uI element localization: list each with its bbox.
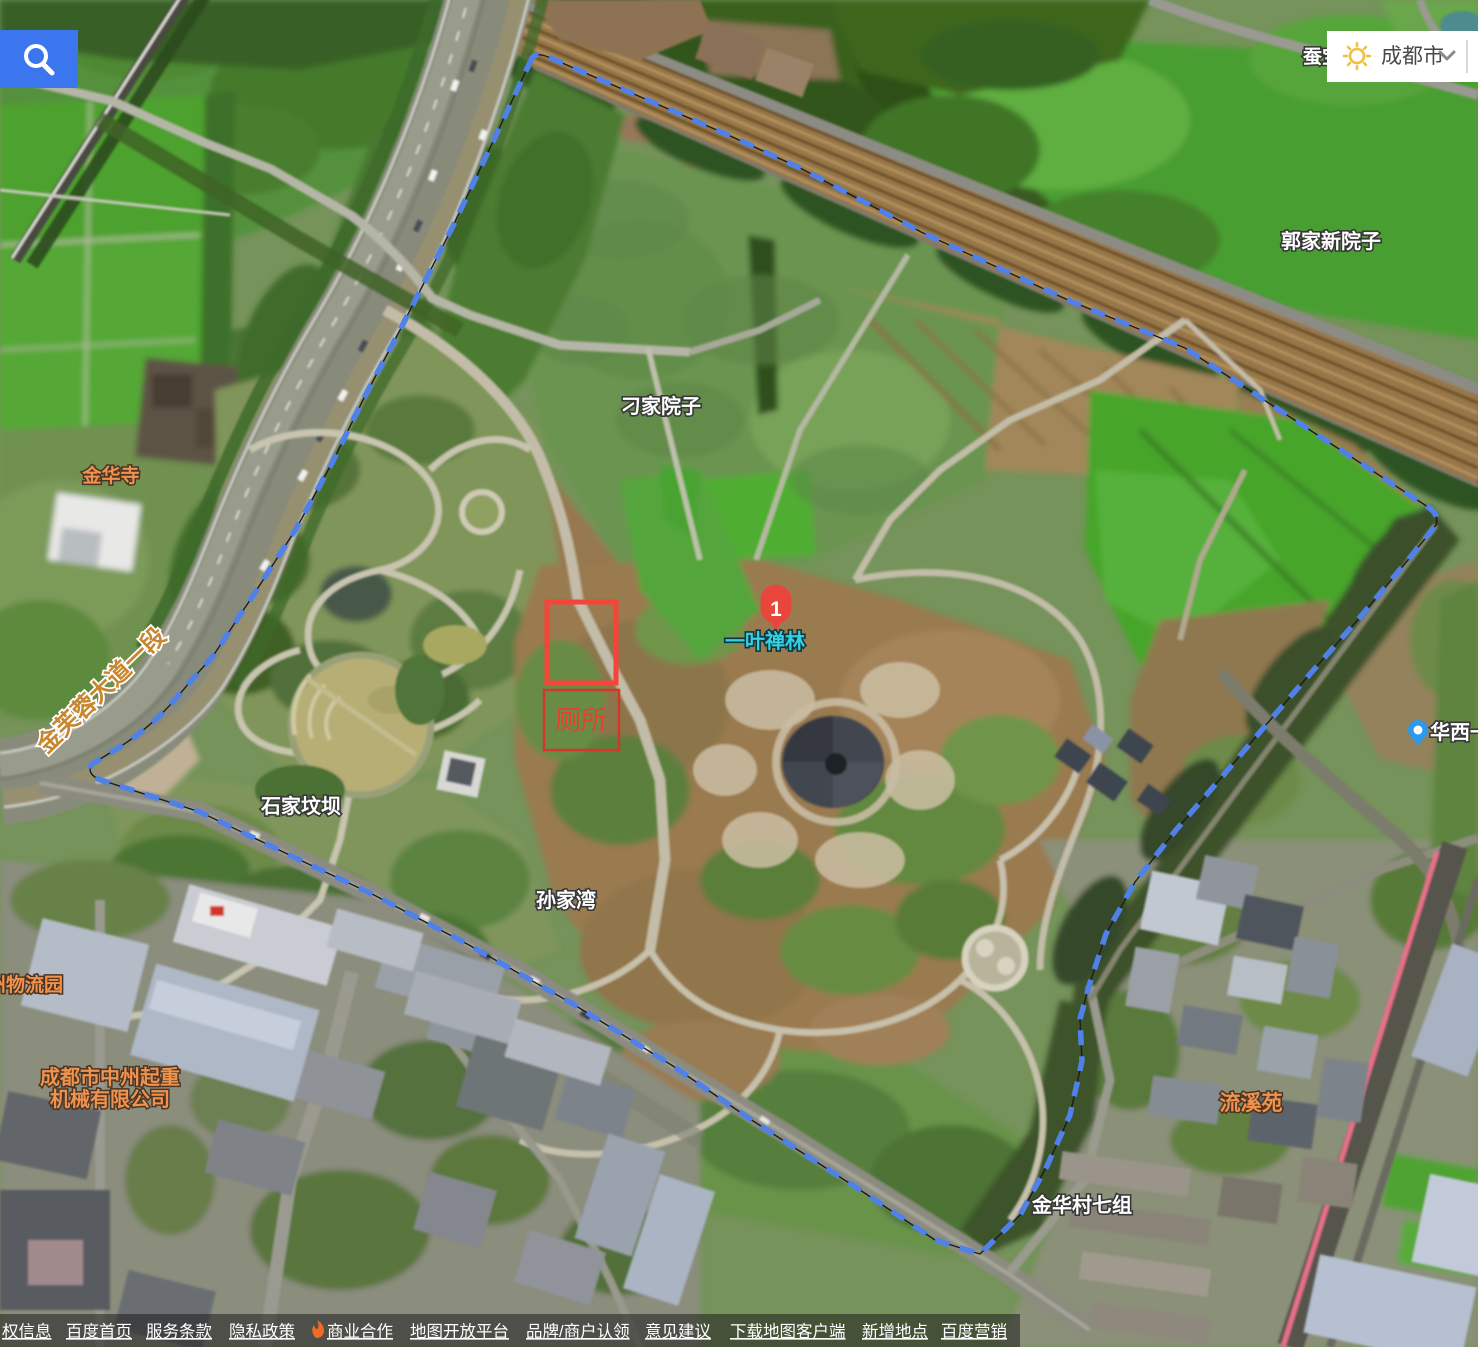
svg-text:华西一: 华西一 [1430, 720, 1478, 744]
svg-text:百度首页: 百度首页 [66, 1322, 132, 1341]
svg-text:地图开放平台: 地图开放平台 [410, 1322, 509, 1341]
svg-text:隐私政策: 隐私政策 [229, 1322, 295, 1341]
svg-text:石家坟坝: 石家坟坝 [260, 794, 341, 818]
svg-text:金华寺: 金华寺 [81, 464, 139, 487]
svg-text:成都市中州起重: 成都市中州起重 [40, 1065, 180, 1089]
svg-text:流溪苑: 流溪苑 [1220, 1091, 1283, 1115]
svg-text:新增地点: 新增地点 [862, 1322, 928, 1341]
svg-text:郭家新院子: 郭家新院子 [1281, 229, 1381, 253]
svg-text:成都市: 成都市 [1381, 45, 1444, 68]
svg-text:金华村七组: 金华村七组 [1031, 1193, 1132, 1217]
svg-text:意见建议: 意见建议 [645, 1322, 712, 1341]
svg-text:下载地图客户端: 下载地图客户端 [730, 1322, 846, 1341]
svg-text:刁家院子: 刁家院子 [621, 394, 701, 418]
svg-text:商业合作: 商业合作 [327, 1322, 393, 1341]
svg-text:一叶禅林: 一叶禅林 [725, 629, 805, 653]
svg-text:厕所: 厕所 [555, 705, 607, 735]
svg-text:品牌/商户认领: 品牌/商户认领 [526, 1322, 630, 1341]
svg-text:权信息: 权信息 [2, 1322, 52, 1341]
svg-text:机械有限公司: 机械有限公司 [50, 1087, 170, 1111]
svg-text:孙家湾: 孙家湾 [536, 888, 596, 912]
svg-text:服务条款: 服务条款 [146, 1322, 213, 1341]
svg-text:州物流园: 州物流园 [0, 973, 63, 996]
svg-text:百度营销: 百度营销 [941, 1322, 1007, 1341]
svg-text:1: 1 [770, 598, 782, 621]
